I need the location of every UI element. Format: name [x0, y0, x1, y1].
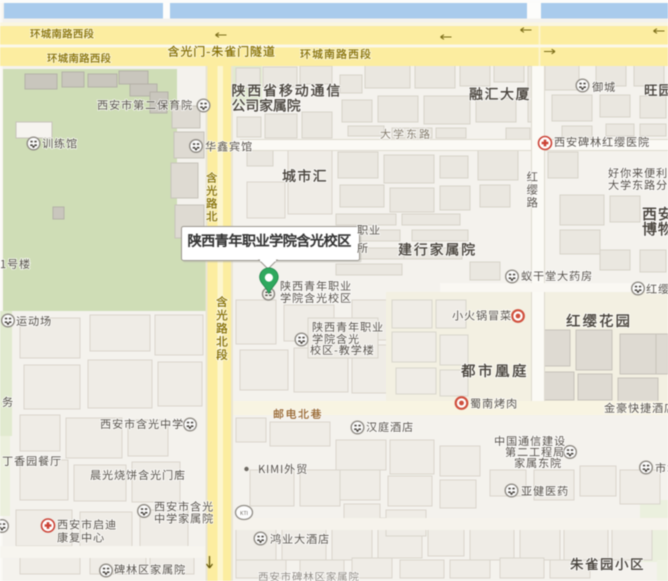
svg-text:KTI: KTI	[240, 511, 248, 517]
